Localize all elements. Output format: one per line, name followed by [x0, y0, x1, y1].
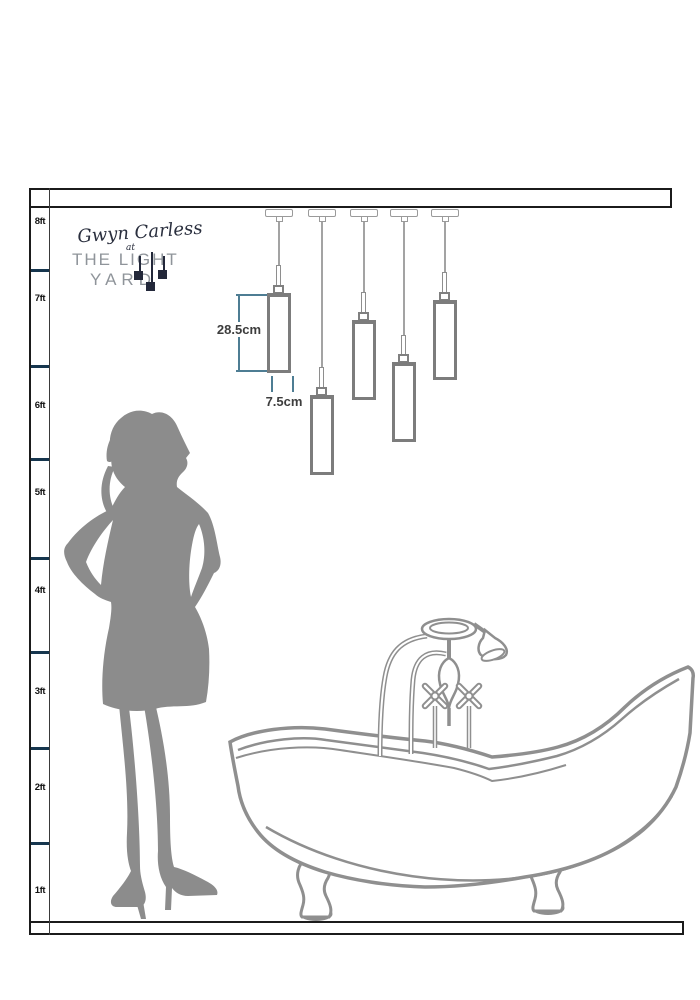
- ruler-tick: [31, 557, 49, 560]
- logo-pendant-square: [146, 282, 155, 291]
- cross-handle: [425, 686, 445, 706]
- diagram-canvas: 8ft 7ft 6ft 5ft 4ft 3ft 2ft 1ft Gwyn Car…: [0, 0, 700, 1000]
- tube-shade: [352, 320, 376, 400]
- lamp-stem: [361, 292, 366, 313]
- logo-pendant-stem: [163, 256, 165, 271]
- dim-tick-left: [271, 376, 273, 392]
- ruler-label-4ft: 4ft: [31, 585, 49, 596]
- female-silhouette: [58, 404, 238, 934]
- cross-handle: [459, 686, 479, 706]
- ruler-label-5ft: 5ft: [31, 487, 49, 498]
- ruler-label-8ft: 8ft: [31, 216, 49, 227]
- ruler-tick: [31, 842, 49, 845]
- shade-width-label: 7.5cm: [260, 394, 308, 409]
- ruler-tick: [31, 747, 49, 750]
- lamp-stem: [442, 272, 447, 293]
- logo-pendant-square: [134, 271, 143, 280]
- tube-shade: [310, 395, 334, 475]
- ruler-label-7ft: 7ft: [31, 293, 49, 304]
- ruler-tick: [31, 458, 49, 461]
- ruler-tick: [31, 651, 49, 654]
- pendant-cable: [403, 222, 405, 335]
- tube-shade: [267, 293, 291, 373]
- tube-shade: [392, 362, 416, 442]
- height-ruler: 8ft 7ft 6ft 5ft 4ft 3ft 2ft 1ft: [29, 188, 50, 935]
- pendant-cable: [363, 222, 365, 292]
- pendant-cable: [278, 222, 280, 265]
- ruler-label-6ft: 6ft: [31, 400, 49, 411]
- clawfoot-bathtub: [222, 598, 700, 938]
- dim-tick-right: [292, 376, 294, 392]
- shade-height-label: 28.5cm: [203, 322, 261, 337]
- logo-pendant-square: [158, 270, 167, 279]
- dim-cap-top: [236, 294, 267, 296]
- ceiling-bar: [29, 188, 672, 208]
- tube-shade: [433, 300, 457, 380]
- ruler-tick: [31, 365, 49, 368]
- lamp-stem: [319, 367, 324, 388]
- logo-pendant-stem: [139, 256, 141, 272]
- brand-script-name: Gwyn Carless: [73, 217, 206, 247]
- lamp-stem: [276, 265, 281, 286]
- ruler-tick: [31, 269, 49, 272]
- ruler-label-2ft: 2ft: [31, 782, 49, 793]
- ruler-label-3ft: 3ft: [31, 686, 49, 697]
- shower-mixer: [380, 619, 507, 756]
- lamp-stem: [401, 335, 406, 355]
- dim-cap-bottom: [236, 370, 267, 372]
- pendant-cable: [444, 222, 446, 272]
- ruler-label-1ft: 1ft: [31, 885, 49, 896]
- logo-pendant-stem: [151, 252, 153, 283]
- pendant-cable: [321, 222, 323, 367]
